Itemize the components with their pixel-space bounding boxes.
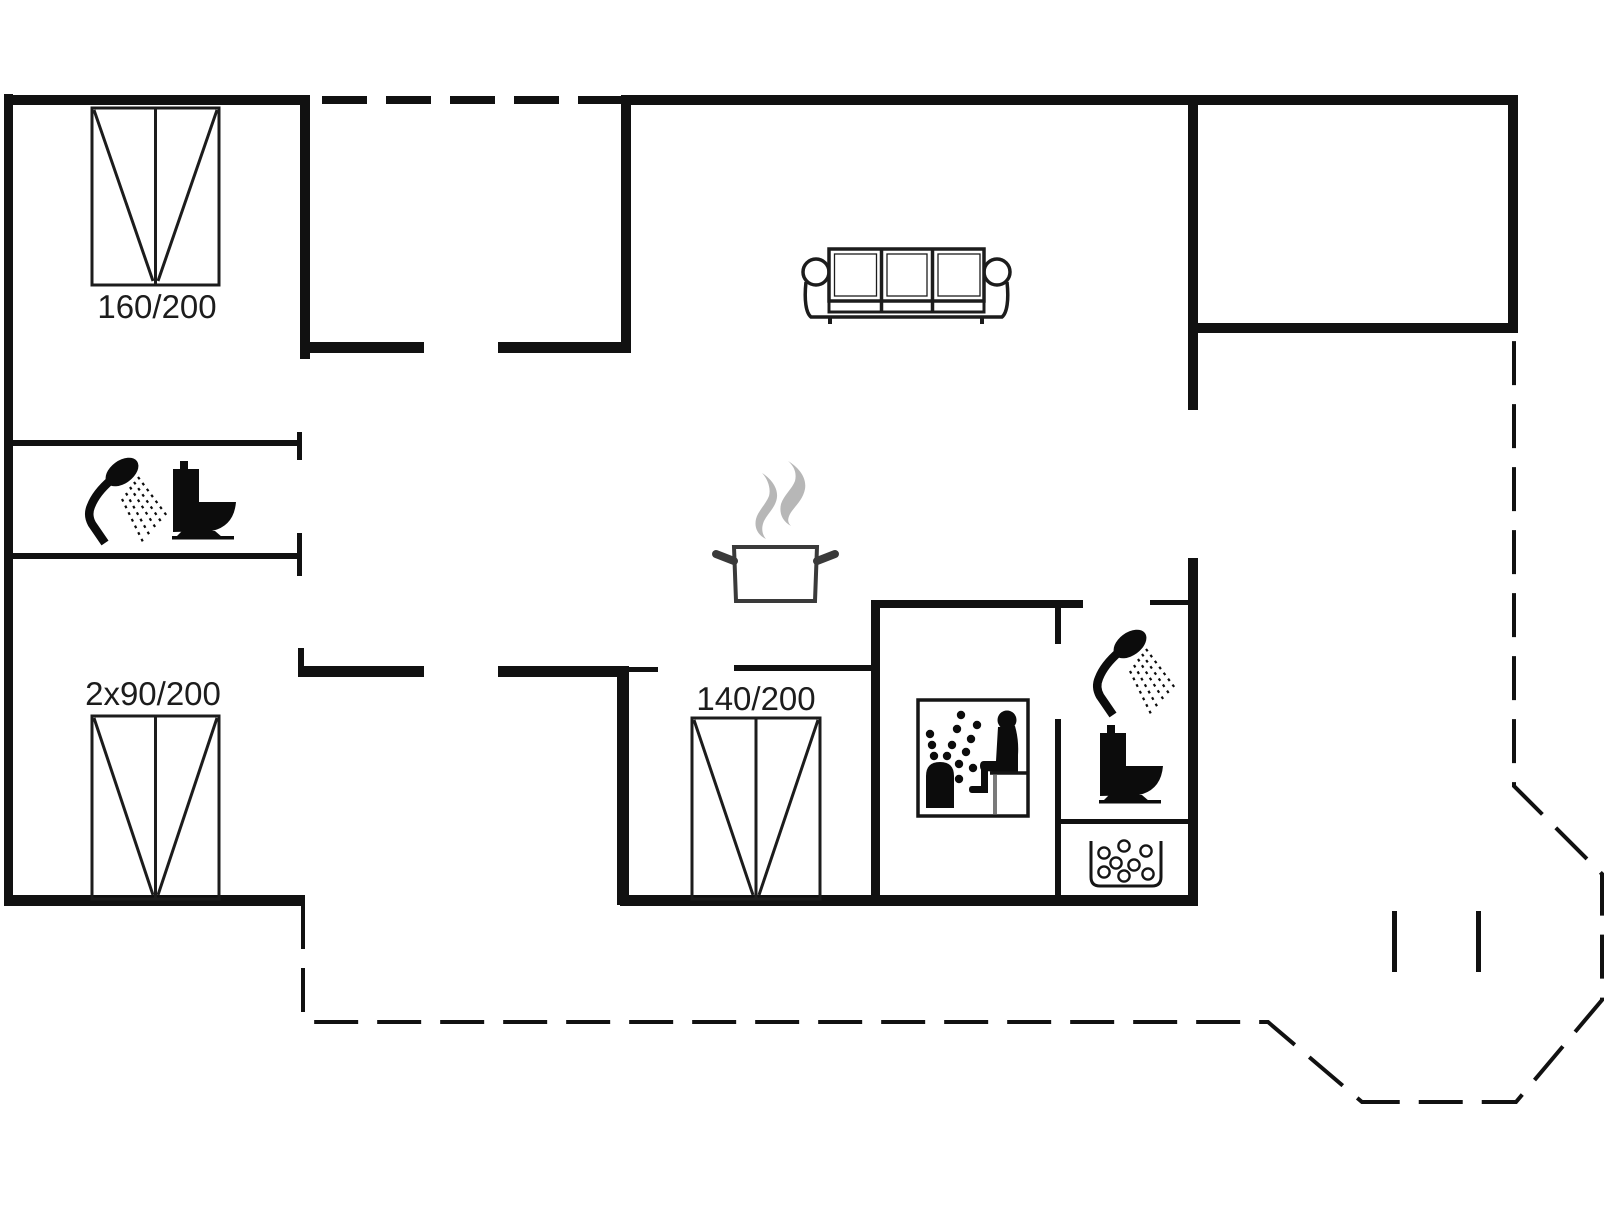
svg-text:140/200: 140/200 <box>696 680 815 717</box>
svg-text:2x90/200: 2x90/200 <box>85 675 221 712</box>
svg-text:160/200: 160/200 <box>97 288 216 325</box>
